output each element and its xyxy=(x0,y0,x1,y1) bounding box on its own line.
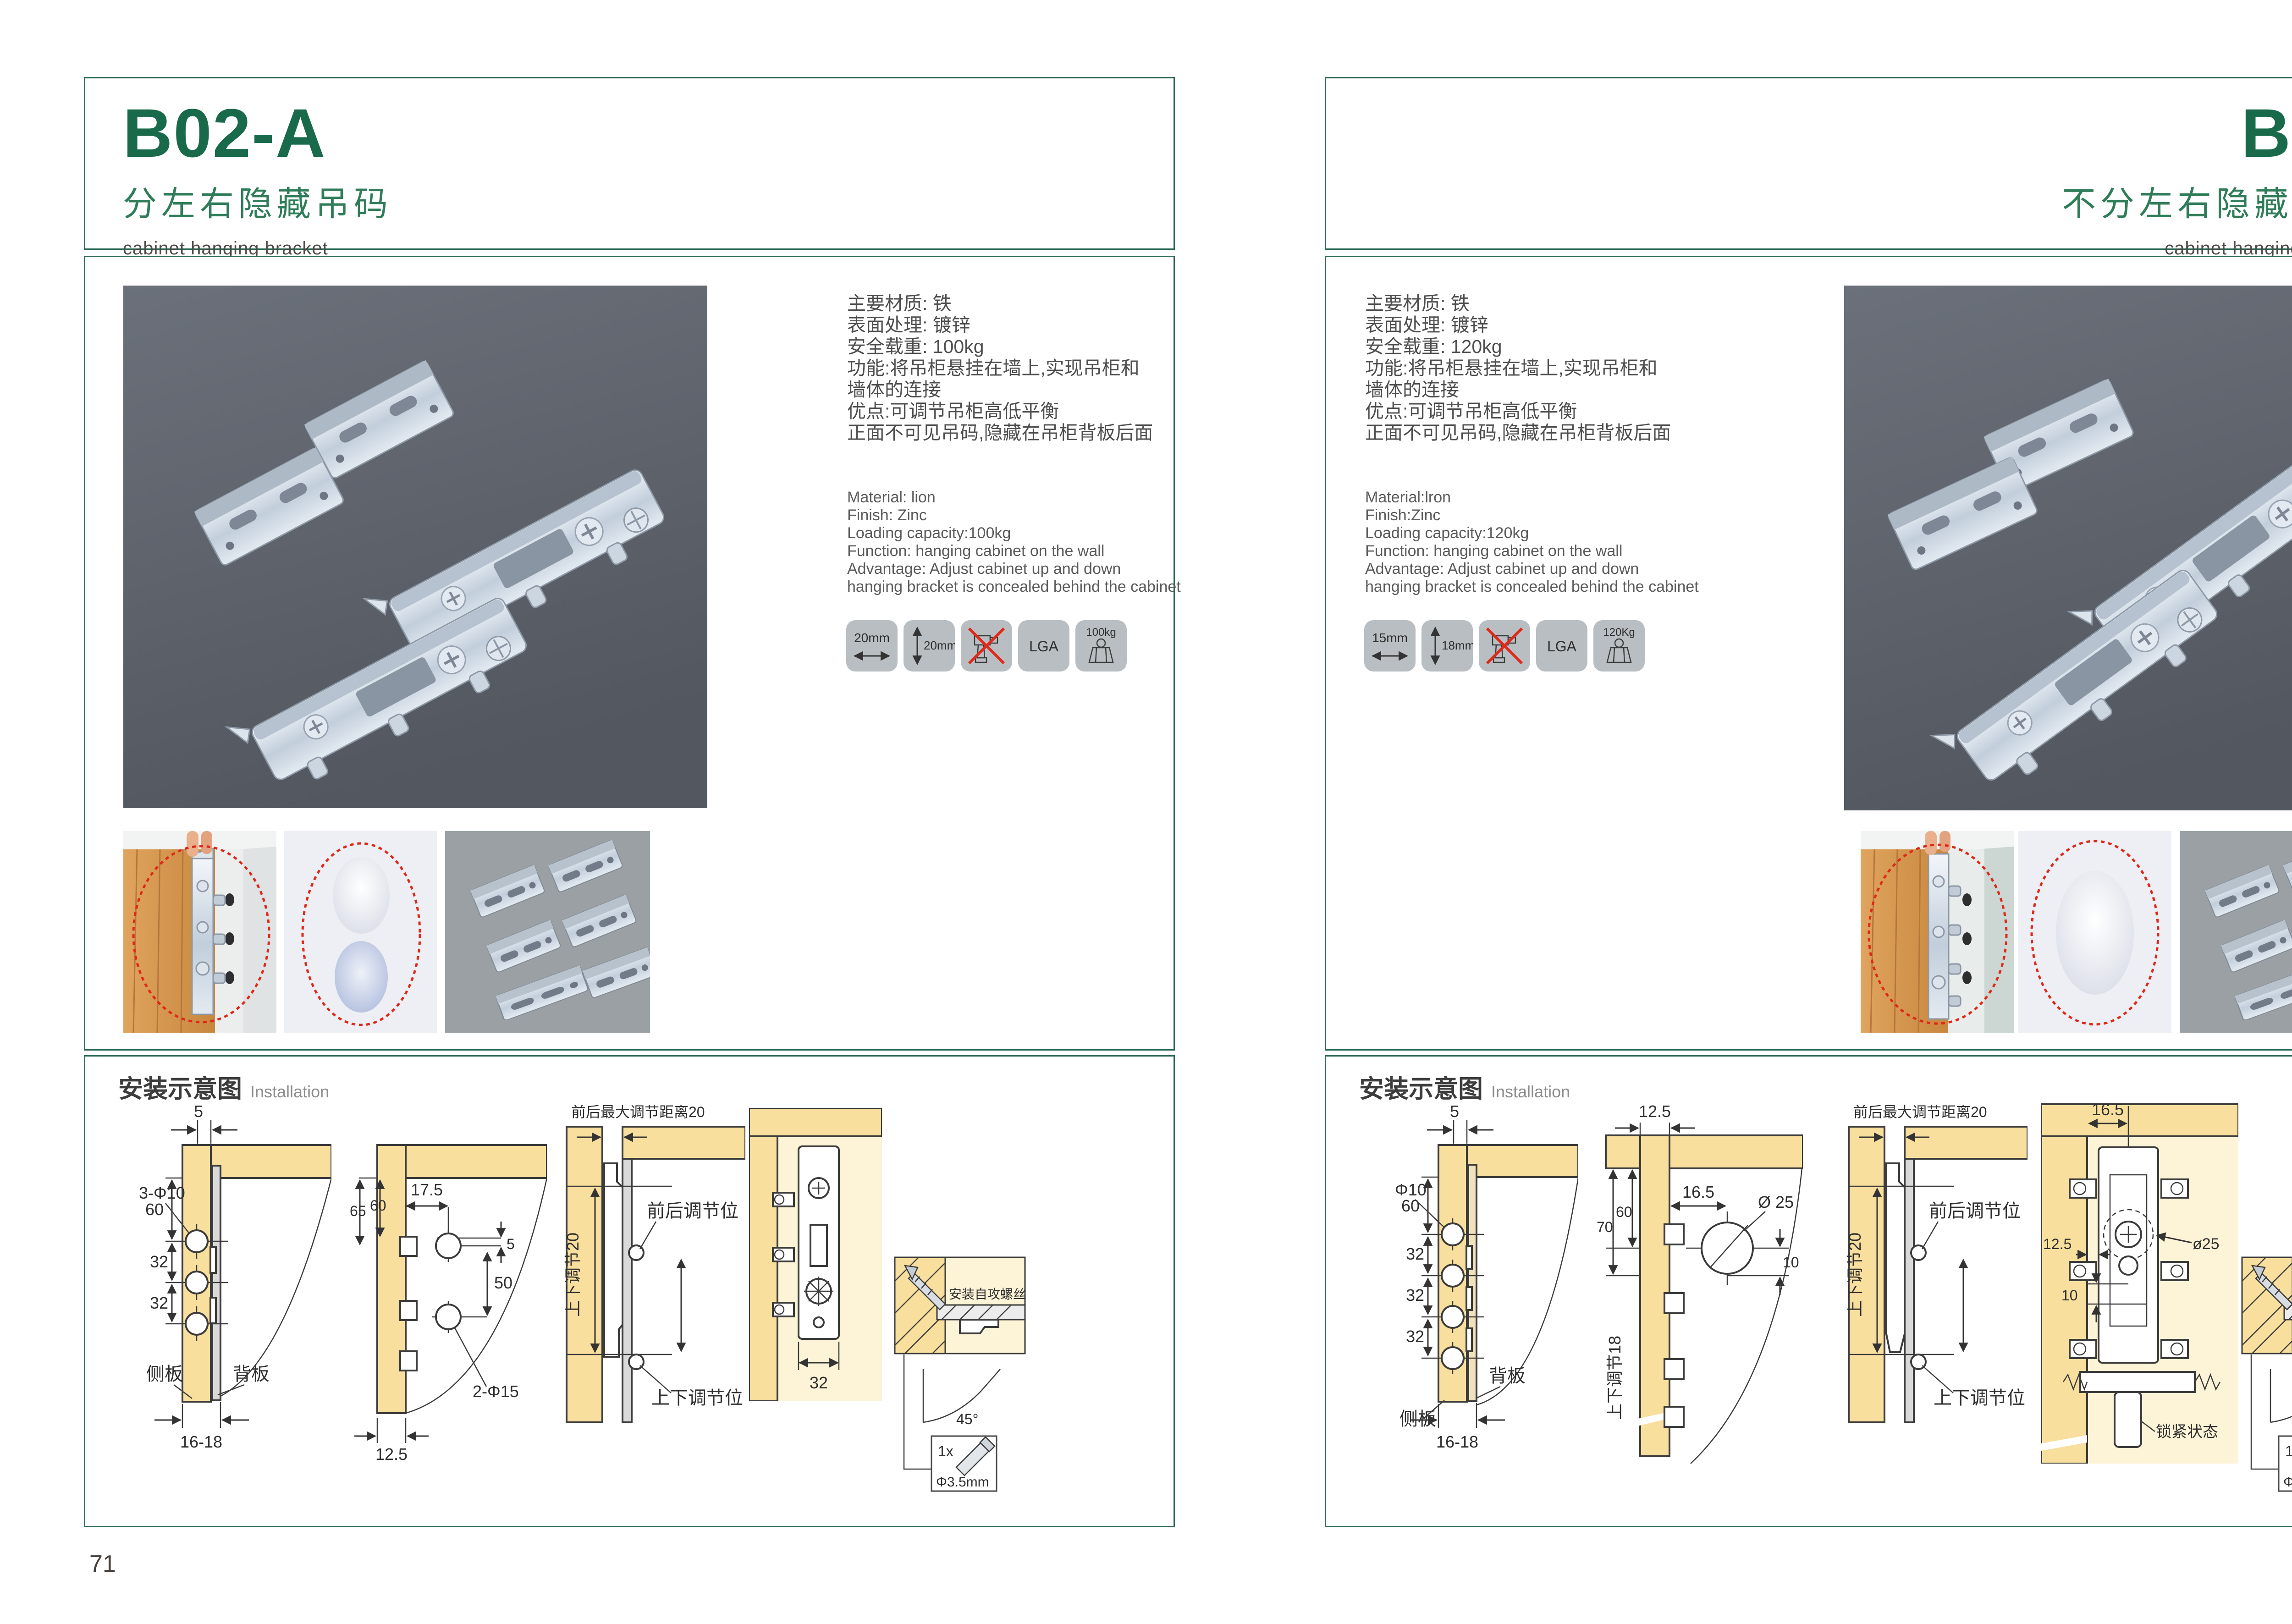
specs-en: Material: lion Finish: Zinc Loading capa… xyxy=(847,489,1168,596)
spec-line: hanging bracket is concealed behind the … xyxy=(847,578,1168,596)
dim-label: 50 xyxy=(494,1273,512,1292)
diagram-adjustment: 前后最大调节距离20 上下调节20 前后调节位 上下调节位 xyxy=(553,1101,745,1464)
dim-label: 16-18 xyxy=(1436,1432,1478,1451)
dim-label: 10 xyxy=(1783,1254,1799,1271)
diagram-screw-detail: 安装自攻螺丝 45° 1x Φ3.5mm xyxy=(2238,1254,2292,1501)
badge-no-drill-icon xyxy=(1479,620,1530,672)
main-panel-right: 主要材质: 铁 表面处理: 镀锌 安全载重: 120kg 功能:将吊柜悬挂在墙上… xyxy=(1325,256,2292,1051)
badge-height-icon: 20mm xyxy=(904,620,955,672)
spec-line: 优点:可调节吊柜高低平衡 xyxy=(1365,401,1677,422)
dim-label: 1x xyxy=(938,1443,953,1459)
spec-line: 安全载重: 100kg xyxy=(847,336,1159,358)
spec-line: Advantage: Adjust cabinet up and down xyxy=(847,560,1168,578)
thumb-wall-plates xyxy=(2180,831,2292,1033)
dim-label: 16-18 xyxy=(180,1432,222,1451)
badge-width-icon: 15mm xyxy=(1364,620,1416,672)
dim-label: 上下调节位 xyxy=(1934,1388,2025,1408)
dim-label: 32 xyxy=(1406,1286,1424,1305)
thumb-installed-bracket xyxy=(1861,831,2014,1033)
feature-badges: 15mm 18mm xyxy=(1364,620,1645,672)
spec-line: Function: hanging cabinet on the wall xyxy=(847,542,1168,560)
spec-line: hanging bracket is concealed behind the … xyxy=(1365,578,1686,596)
dim-label: 12.5 xyxy=(375,1445,408,1464)
dim-label: 12.5 xyxy=(2043,1236,2072,1252)
installation-title-cn: 安装示意图 xyxy=(1359,1075,1483,1103)
badge-load-icon: 100kg xyxy=(1075,620,1127,672)
dim-label: 32 xyxy=(150,1252,168,1271)
dim-label: 10 xyxy=(2061,1287,2078,1304)
installation-header: 安装示意图Installation xyxy=(118,1068,329,1105)
dim-label: Φ3.5mm xyxy=(2283,1475,2292,1490)
spec-line: 主要材质: 铁 xyxy=(1365,293,1677,314)
catalog-spread: B02-A 分左右隐藏吊码 cabinet hanging bracket 主要… xyxy=(0,0,2292,1624)
dim-label: 17.5 xyxy=(411,1180,443,1199)
install-panel-left: 安装示意图Installation 5 xyxy=(84,1055,1175,1527)
dim-label: 32 xyxy=(1406,1244,1424,1263)
dim-label: 前后最大调节距离20 xyxy=(1853,1104,1987,1120)
diagram-screw-detail: 安装自攻螺丝 45° 1x Φ3.5mm xyxy=(891,1254,1029,1501)
badge-height-icon: 18mm xyxy=(1421,620,1473,672)
spec-line: 墙体的连接 xyxy=(847,379,1159,401)
feature-badges: 20mm 20mm xyxy=(846,620,1127,672)
product-code: B02-A xyxy=(123,99,392,167)
dim-label: 1x xyxy=(2285,1443,2292,1459)
diagram-hole-positions: 17.5 65 60 5 50 2-Φ15 12.5 xyxy=(350,1101,547,1464)
diagram-adjustment: 前后最大调节距离20 上下调节20 前后调节位 上下调节位 xyxy=(1835,1101,2028,1464)
page-number: 71 xyxy=(89,1550,116,1578)
spec-line: Loading capacity:100kg xyxy=(847,524,1168,542)
diagram-bracket-front: 32 xyxy=(749,1108,882,1401)
product-title-cn: 不分左右隐藏吊码 xyxy=(2062,176,2292,226)
install-panel-right: 安装示意图Installation xyxy=(1325,1055,2292,1527)
product-code: B03 xyxy=(2062,99,2292,167)
dim-label: 32 xyxy=(1406,1327,1424,1346)
spec-line: 墙体的连接 xyxy=(1365,379,1677,401)
badge-lga-label: LGA xyxy=(1547,638,1577,655)
dim-label: 60 xyxy=(370,1197,386,1214)
dim-label: 60 xyxy=(1401,1196,1420,1215)
spec-line: Advantage: Adjust cabinet up and down xyxy=(1365,560,1686,578)
spec-line: 优点:可调节吊柜高低平衡 xyxy=(847,401,1159,422)
badge-lga-icon: LGA xyxy=(1536,620,1587,672)
badge-load-label: 100kg xyxy=(1086,626,1116,639)
dim-label: 2-Φ15 xyxy=(473,1382,519,1401)
dim-label: 60 xyxy=(1616,1204,1632,1220)
dim-label: 70 xyxy=(1597,1219,1613,1235)
product-photo xyxy=(123,286,707,808)
spec-line: 表面处理: 镀锌 xyxy=(1365,314,1677,336)
spec-line: 功能:将吊柜悬挂在墙上,实现吊柜和 xyxy=(1365,358,1677,379)
badge-load-icon: 120Kg xyxy=(1593,620,1645,672)
badge-no-drill-icon xyxy=(961,620,1012,672)
dim-label: 5 xyxy=(1450,1102,1459,1121)
dim-label: 45° xyxy=(956,1411,978,1427)
spec-line: 主要材质: 铁 xyxy=(847,293,1159,314)
dim-label: 前后最大调节距离20 xyxy=(571,1104,705,1120)
installation-title-en: Installation xyxy=(1491,1082,1570,1101)
badge-height-label: 20mm xyxy=(924,639,955,652)
spec-line: 正面不可见吊码,隐藏在吊柜背板后面 xyxy=(847,422,1159,444)
dim-label: 5 xyxy=(507,1236,515,1252)
dim-label: 上下调节18 xyxy=(1605,1336,1624,1420)
thumb-wall-plates xyxy=(445,831,650,1033)
dim-label: 16.5 xyxy=(2092,1100,2124,1119)
product-photo xyxy=(1844,286,2292,810)
diagram-bracket-front: 16.5 ø25 12.5 xyxy=(2041,1097,2238,1464)
dim-label: Φ3.5mm xyxy=(936,1475,989,1490)
badge-width-icon: 20mm xyxy=(846,620,898,672)
thumb-concealed-holes xyxy=(284,831,437,1033)
spec-line: Loading capacity:120kg xyxy=(1365,524,1686,542)
specs-en: Material:lron Finish:Zinc Loading capaci… xyxy=(1365,489,1686,596)
dim-label: 32 xyxy=(810,1373,828,1392)
main-panel-left: 主要材质: 铁 表面处理: 镀锌 安全载重: 100kg 功能:将吊柜悬挂在墙上… xyxy=(84,256,1175,1051)
thumb-concealed-holes xyxy=(2018,831,2171,1033)
dim-label: 上下调节20 xyxy=(563,1233,582,1317)
specs-cn: 主要材质: 铁 表面处理: 镀锌 安全载重: 100kg 功能:将吊柜悬挂在墙上… xyxy=(847,293,1159,444)
badge-load-label: 120Kg xyxy=(1603,626,1635,639)
dim-label: 上下调节位 xyxy=(651,1388,743,1408)
installation-header: 安装示意图Installation xyxy=(1359,1068,1570,1105)
spec-line: 表面处理: 镀锌 xyxy=(847,314,1159,336)
part-label: 背板 xyxy=(233,1364,270,1384)
dim-label: 65 xyxy=(350,1203,366,1219)
dim-label: 上下调节20 xyxy=(1846,1233,1864,1317)
specs-cn: 主要材质: 铁 表面处理: 镀锌 安全载重: 120kg 功能:将吊柜悬挂在墙上… xyxy=(1365,293,1677,444)
badge-lga-icon: LGA xyxy=(1018,620,1069,672)
badge-width-label: 15mm xyxy=(1372,631,1408,645)
diagram-side-drilling: 5 60 3-Φ10 32 32 侧板 背板 16-18 xyxy=(139,1101,331,1464)
part-label: 侧板 xyxy=(146,1364,183,1384)
dim-label: 16.5 xyxy=(1682,1183,1714,1201)
installation-title-cn: 安装示意图 xyxy=(118,1075,242,1103)
spec-line: Finish:Zinc xyxy=(1365,506,1686,524)
dim-label: 安装自攻螺丝 xyxy=(949,1287,1026,1301)
spec-line: 功能:将吊柜悬挂在墙上,实现吊柜和 xyxy=(847,358,1159,379)
thumb-installed-bracket xyxy=(123,831,276,1033)
spec-line: 安全载重: 120kg xyxy=(1365,336,1677,358)
dim-label: Φ10 xyxy=(1395,1180,1427,1199)
dim-label: 3-Φ10 xyxy=(139,1184,185,1202)
spec-line: Material: lion xyxy=(847,489,1168,506)
dim-label: Ø 25 xyxy=(1758,1193,1794,1211)
spec-line: Function: hanging cabinet on the wall xyxy=(1365,542,1686,560)
spec-line: Material:lron xyxy=(1365,489,1686,506)
header-panel-right: B03 不分左右隐藏吊码 cabinet hanging bracket xyxy=(1325,77,2292,250)
installation-title-en: Installation xyxy=(250,1082,329,1101)
dim-label: 12.5 xyxy=(1639,1102,1671,1121)
product-title-cn: 分左右隐藏吊码 xyxy=(123,176,392,226)
dim-label: 锁紧状态 xyxy=(2156,1423,2218,1441)
spec-line: 正面不可见吊码,隐藏在吊柜背板后面 xyxy=(1365,422,1677,444)
diagram-hole-positions: Ø 25 12.5 70 60 16.5 10 上下调节18 xyxy=(1597,1097,1803,1486)
diagram-side-drilling: 5 60 Φ10 32 32 32 侧板 背板 16-18 xyxy=(1395,1101,1578,1468)
badge-width-label: 20mm xyxy=(854,631,890,645)
badge-height-label: 18mm xyxy=(1442,639,1473,652)
dim-label: 前后调节位 xyxy=(1929,1201,2021,1221)
dim-label: ø25 xyxy=(2193,1235,2220,1253)
dim-label: 5 xyxy=(194,1102,203,1121)
header-panel-left: B02-A 分左右隐藏吊码 cabinet hanging bracket xyxy=(84,77,1175,250)
dim-label: 32 xyxy=(150,1294,168,1312)
part-label: 背板 xyxy=(1489,1366,1526,1386)
spec-line: Finish: Zinc xyxy=(847,506,1168,524)
dim-label: 60 xyxy=(145,1200,164,1219)
badge-lga-label: LGA xyxy=(1029,638,1059,655)
dim-label: 前后调节位 xyxy=(647,1201,738,1221)
